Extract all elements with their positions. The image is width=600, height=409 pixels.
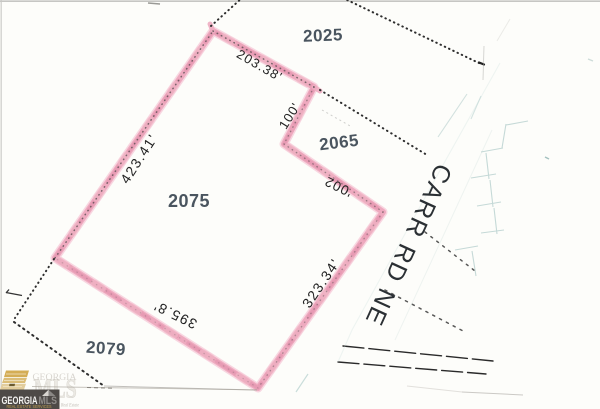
svg-text:Real Estate: Real Estate	[60, 404, 79, 409]
svg-text:REAL ESTATE SERVICES: REAL ESTATE SERVICES	[7, 404, 52, 409]
svg-text:2079: 2079	[85, 338, 126, 360]
svg-text:2075: 2075	[168, 191, 210, 211]
svg-text:2025: 2025	[303, 25, 343, 45]
